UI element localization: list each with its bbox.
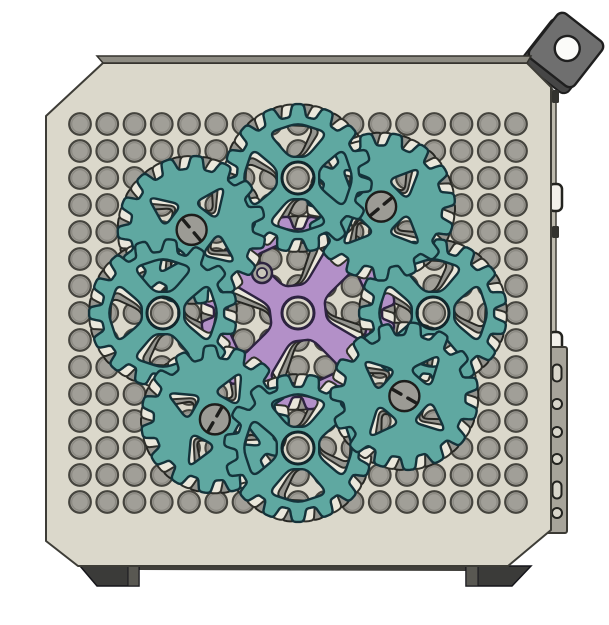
vent-hole <box>69 464 91 486</box>
vent-hole <box>96 383 118 405</box>
vent-hole <box>96 491 118 513</box>
vent-hole <box>505 437 527 459</box>
vent-hole <box>451 167 473 189</box>
vent-hole <box>478 410 500 432</box>
edge-tab <box>552 90 559 103</box>
vent-hole <box>423 491 445 513</box>
vent-hole <box>287 302 309 324</box>
vent-hole <box>178 491 200 513</box>
vent-hole <box>505 140 527 162</box>
vent-hole <box>69 410 91 432</box>
vent-hole <box>451 140 473 162</box>
vent-hole <box>96 437 118 459</box>
vent-hole <box>505 167 527 189</box>
vent-hole <box>396 491 418 513</box>
vent-hole <box>124 113 146 135</box>
rubber-foot-right-stripe <box>466 566 478 586</box>
planet-screw <box>200 404 230 434</box>
vent-hole <box>96 221 118 243</box>
vent-hole <box>96 140 118 162</box>
vent-hole <box>478 221 500 243</box>
rail-slot <box>553 482 562 499</box>
vent-hole <box>505 329 527 351</box>
vent-hole <box>205 113 227 135</box>
vent-hole <box>478 113 500 135</box>
vent-hole <box>69 275 91 297</box>
vent-hole <box>505 194 527 216</box>
vent-hole <box>505 113 527 135</box>
vent-hole <box>478 437 500 459</box>
vent-hole <box>69 491 91 513</box>
panel-top-rim <box>97 56 531 63</box>
rail-hole <box>552 427 562 437</box>
vent-hole <box>396 113 418 135</box>
sun-screw-inner <box>257 268 267 278</box>
vent-hole <box>69 113 91 135</box>
vent-hole <box>505 248 527 270</box>
vent-hole <box>478 194 500 216</box>
hole-grid <box>69 113 527 513</box>
vent-hole <box>205 491 227 513</box>
vent-hole <box>151 302 173 324</box>
vent-hole <box>96 113 118 135</box>
vent-hole <box>423 113 445 135</box>
vent-hole <box>69 383 91 405</box>
rail-hole <box>552 399 562 409</box>
rail-hole <box>552 454 562 464</box>
vent-hole <box>69 167 91 189</box>
vent-hole <box>478 491 500 513</box>
vent-hole <box>178 113 200 135</box>
vent-hole <box>505 383 527 405</box>
vent-hole <box>505 221 527 243</box>
vent-hole <box>96 167 118 189</box>
vent-hole <box>423 464 445 486</box>
vent-hole <box>423 302 445 324</box>
vent-hole <box>287 437 309 459</box>
vent-hole <box>151 491 173 513</box>
vent-hole <box>451 491 473 513</box>
vent-hole <box>96 410 118 432</box>
vent-hole <box>369 113 391 135</box>
vent-hole <box>69 329 91 351</box>
vent-hole <box>96 194 118 216</box>
vent-hole <box>69 437 91 459</box>
vent-hole <box>505 302 527 324</box>
vent-hole <box>369 491 391 513</box>
rail-hole <box>552 508 562 518</box>
vent-hole <box>505 356 527 378</box>
edge-tab <box>552 226 559 238</box>
cad-viewport[interactable] <box>0 0 609 625</box>
vent-hole <box>69 356 91 378</box>
vent-hole <box>69 194 91 216</box>
vent-hole <box>287 167 309 189</box>
planet-screw <box>389 381 419 411</box>
vent-hole <box>478 167 500 189</box>
vent-hole <box>478 140 500 162</box>
planet-screw <box>177 215 207 245</box>
vent-hole <box>124 491 146 513</box>
vent-hole <box>96 464 118 486</box>
vent-hole <box>451 113 473 135</box>
vent-hole <box>69 302 91 324</box>
vent-hole <box>124 140 146 162</box>
vent-hole <box>124 437 146 459</box>
vent-hole <box>69 248 91 270</box>
vent-hole <box>478 383 500 405</box>
vent-hole <box>69 140 91 162</box>
vent-hole <box>451 221 473 243</box>
case-render <box>0 0 609 625</box>
vent-hole <box>451 464 473 486</box>
vent-hole <box>505 410 527 432</box>
vent-hole <box>505 275 527 297</box>
planet-screw <box>366 192 396 222</box>
rubber-foot-left-stripe <box>128 566 139 586</box>
vent-hole <box>505 491 527 513</box>
vent-hole <box>151 113 173 135</box>
vent-hole <box>505 464 527 486</box>
vent-hole <box>478 464 500 486</box>
vent-hole <box>124 464 146 486</box>
rail-slot <box>553 365 562 382</box>
vent-hole <box>69 221 91 243</box>
